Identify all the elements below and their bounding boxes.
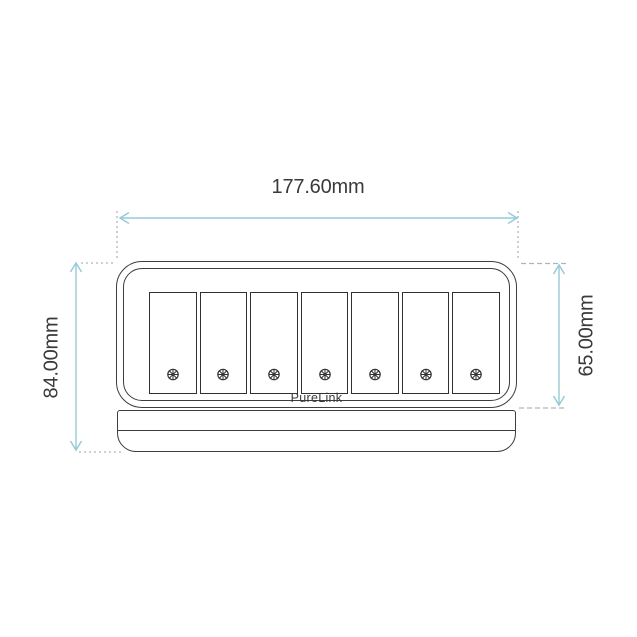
technical-drawing: 177.60mm 84.00mm 65.00mm xyxy=(0,0,637,637)
module-panel xyxy=(402,292,450,394)
screw-icon xyxy=(470,368,483,381)
module-panel xyxy=(351,292,399,394)
screw-icon xyxy=(267,368,280,381)
module-panel xyxy=(149,292,197,394)
module-panel xyxy=(200,292,248,394)
screw-icon xyxy=(166,368,179,381)
body-height-dimension-label: 65.00mm xyxy=(576,276,599,396)
total-height-dimension-label: 84.00mm xyxy=(41,298,64,418)
screw-icon xyxy=(369,368,382,381)
screw-icon xyxy=(419,368,432,381)
module-panel xyxy=(250,292,298,394)
screw-icon xyxy=(217,368,230,381)
module-panel xyxy=(452,292,500,394)
base-divider-line xyxy=(117,430,516,431)
device-body-outline: PureLink xyxy=(116,261,517,408)
device-base xyxy=(117,410,516,452)
width-dimension-label: 177.60mm xyxy=(238,176,398,199)
device-inner-outline: PureLink xyxy=(123,268,510,401)
screw-icon xyxy=(318,368,331,381)
module-panel xyxy=(301,292,349,394)
panel-strip xyxy=(149,292,500,394)
brand-label: PureLink xyxy=(124,391,509,405)
